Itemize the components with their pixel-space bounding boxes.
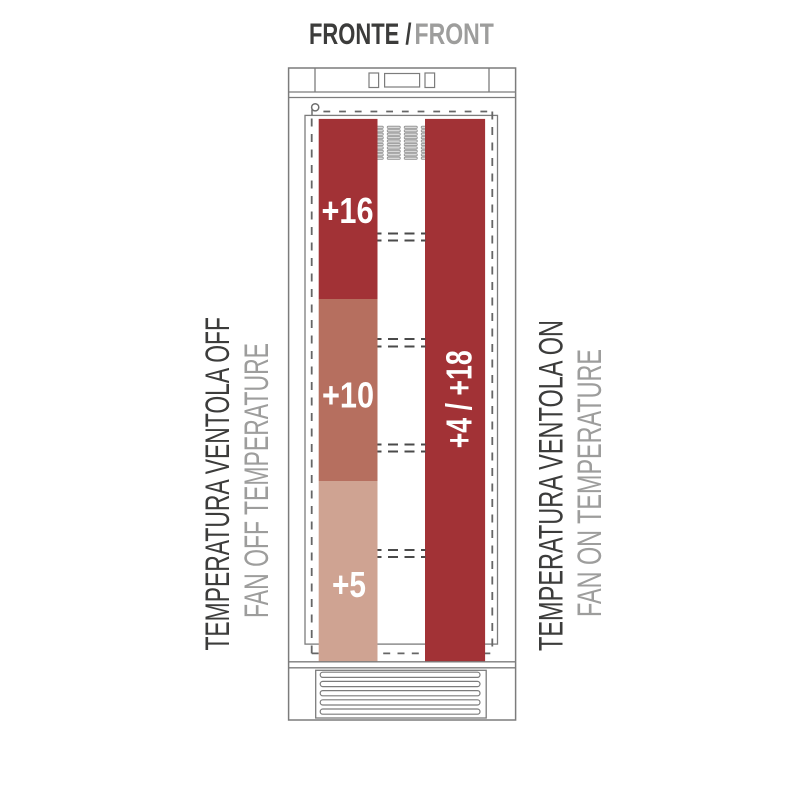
- svg-text:+10: +10: [322, 374, 374, 415]
- svg-text:+4 / +18: +4 / +18: [439, 350, 480, 448]
- svg-text:FAN ON TEMPERATURE: FAN ON TEMPERATURE: [571, 349, 609, 617]
- svg-text:TEMPERATURA VENTOLA ON: TEMPERATURA VENTOLA ON: [533, 320, 571, 651]
- svg-text:FRONTE /: FRONTE /: [309, 18, 412, 51]
- svg-text:+16: +16: [322, 190, 374, 231]
- svg-text:FRONT: FRONT: [415, 18, 494, 51]
- svg-text:TEMPERATURA VENTOLA OFF: TEMPERATURA VENTOLA OFF: [199, 317, 237, 651]
- svg-text:FAN OFF TEMPERATURE: FAN OFF TEMPERATURE: [238, 343, 276, 618]
- svg-text:+5: +5: [332, 564, 366, 605]
